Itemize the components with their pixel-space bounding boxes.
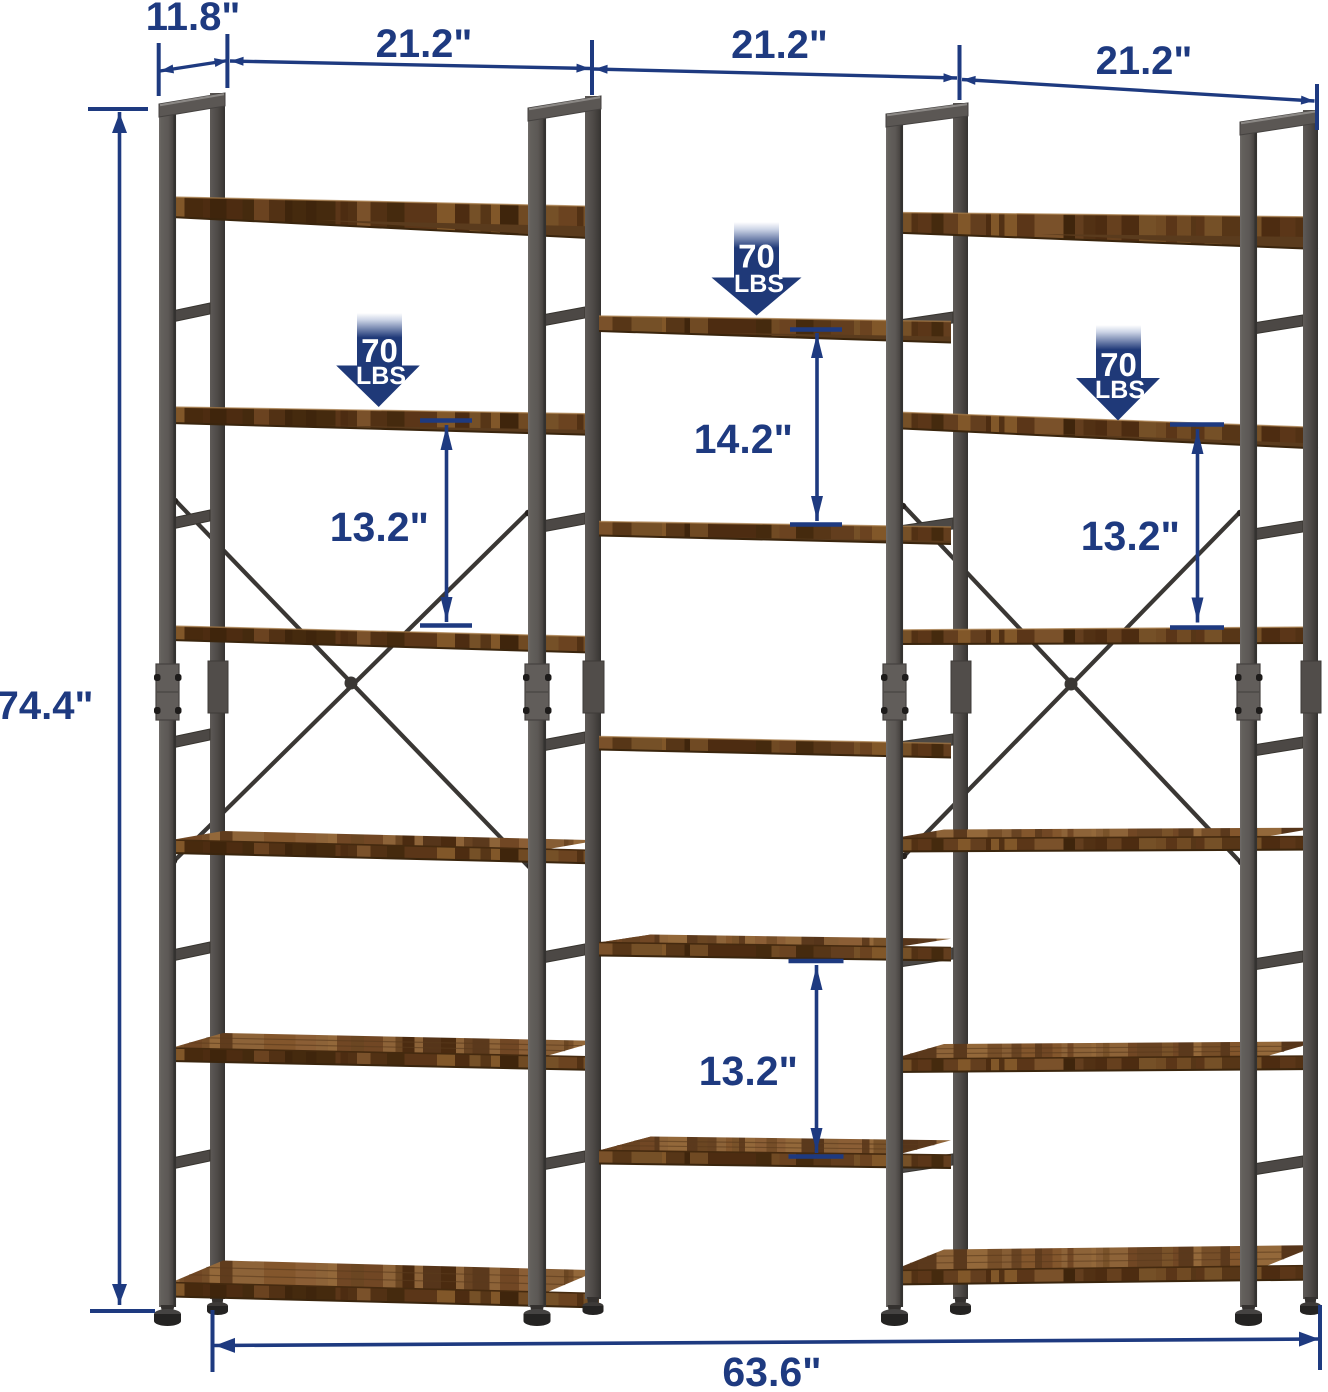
- svg-text:13.2": 13.2": [1081, 513, 1180, 559]
- svg-text:21.2": 21.2": [376, 22, 473, 66]
- svg-text:21.2": 21.2": [731, 23, 828, 67]
- svg-text:21.2": 21.2": [1096, 39, 1193, 83]
- svg-text:LBS: LBS: [1095, 376, 1145, 404]
- svg-text:14.2": 14.2": [694, 416, 793, 462]
- svg-text:63.6": 63.6": [722, 1349, 821, 1387]
- svg-text:LBS: LBS: [356, 362, 406, 390]
- svg-text:13.2": 13.2": [699, 1048, 798, 1094]
- svg-text:74.4": 74.4": [0, 684, 93, 728]
- svg-text:13.2": 13.2": [330, 504, 429, 550]
- svg-text:11.8": 11.8": [146, 0, 241, 39]
- svg-text:LBS: LBS: [734, 270, 784, 298]
- svg-text:70: 70: [738, 238, 775, 275]
